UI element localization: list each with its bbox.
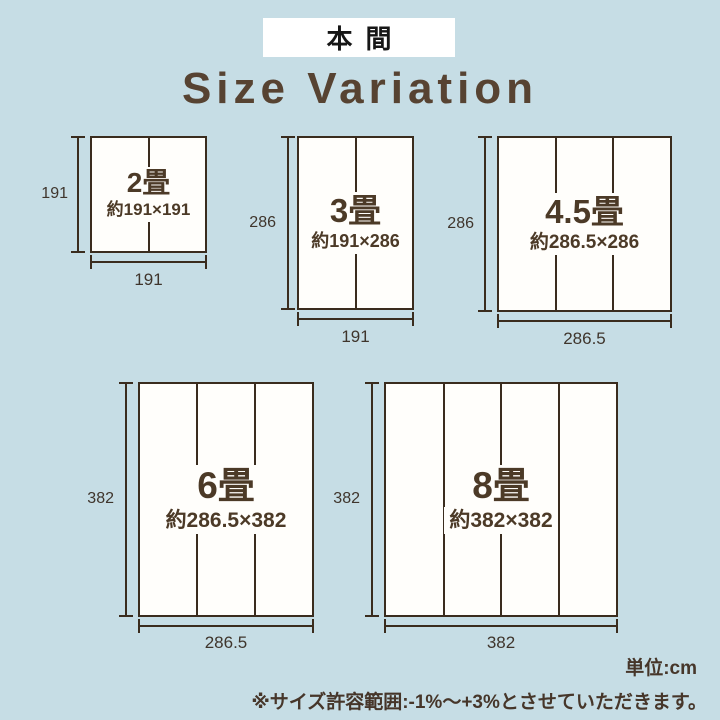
panel-divider — [558, 384, 560, 615]
height-dimension-line — [71, 136, 85, 253]
size-labels: 3畳 約191×286 — [306, 192, 405, 254]
height-dimension-label: 286 — [444, 216, 474, 232]
height-dimension-line — [365, 382, 379, 617]
size-variation-infographic: 本間 Size Variation 2畳 約191×191 191 191 3畳… — [0, 0, 720, 720]
size-labels: 2畳 約191×191 — [102, 167, 196, 222]
width-dimension-label: 286.5 — [138, 634, 314, 651]
tatami-rect-4-5jo: 4.5畳 約286.5×286 — [497, 136, 672, 312]
width-dimension-line — [297, 312, 414, 326]
size-standard-badge: 本間 — [263, 18, 455, 57]
height-dimension-line — [478, 136, 492, 312]
size-labels: 8畳 約382×382 — [444, 465, 557, 535]
tatami-rect-2jo: 2畳 約191×191 — [90, 136, 207, 253]
page-title: Size Variation — [0, 64, 720, 114]
width-dimension-line — [497, 314, 672, 328]
tatami-rect-3jo: 3畳 約191×286 — [297, 136, 414, 310]
size-dimensions-label: 約286.5×286 — [525, 231, 644, 256]
tatami-rect-6jo: 6畳 約286.5×382 — [138, 382, 314, 617]
width-dimension-line — [90, 255, 207, 269]
size-dimensions-label: 約191×191 — [102, 199, 196, 221]
height-dimension-label: 191 — [38, 186, 68, 202]
width-dimension-line — [384, 619, 618, 633]
height-dimension-line — [119, 382, 133, 617]
tolerance-note: ※サイズ許容範囲:-1%〜+3%とさせていただきます。 — [251, 687, 707, 714]
width-dimension-label: 382 — [384, 634, 618, 651]
unit-label: 単位:cm — [625, 653, 697, 680]
size-dimensions-label: 約382×382 — [444, 507, 557, 534]
height-dimension-label: 382 — [330, 491, 360, 507]
size-labels: 6畳 約286.5×382 — [161, 465, 292, 535]
height-dimension-label: 286 — [246, 215, 276, 231]
size-name-label: 6畳 — [191, 465, 261, 508]
width-dimension-label: 191 — [90, 271, 207, 288]
height-dimension-label: 382 — [84, 491, 114, 507]
width-dimension-label: 286.5 — [497, 330, 672, 347]
size-standard-label: 本間 — [326, 19, 404, 56]
height-dimension-line — [281, 136, 295, 310]
size-name-label: 8畳 — [466, 465, 536, 508]
size-dimensions-label: 約191×286 — [306, 230, 405, 254]
size-dimensions-label: 約286.5×382 — [161, 507, 292, 534]
size-labels: 4.5畳 約286.5×286 — [525, 193, 644, 256]
size-name-label: 2畳 — [121, 167, 177, 199]
width-dimension-label: 191 — [297, 328, 414, 345]
size-name-label: 4.5畳 — [539, 193, 630, 231]
width-dimension-line — [138, 619, 314, 633]
tatami-rect-8jo: 8畳 約382×382 — [384, 382, 618, 617]
size-name-label: 3畳 — [324, 192, 387, 230]
